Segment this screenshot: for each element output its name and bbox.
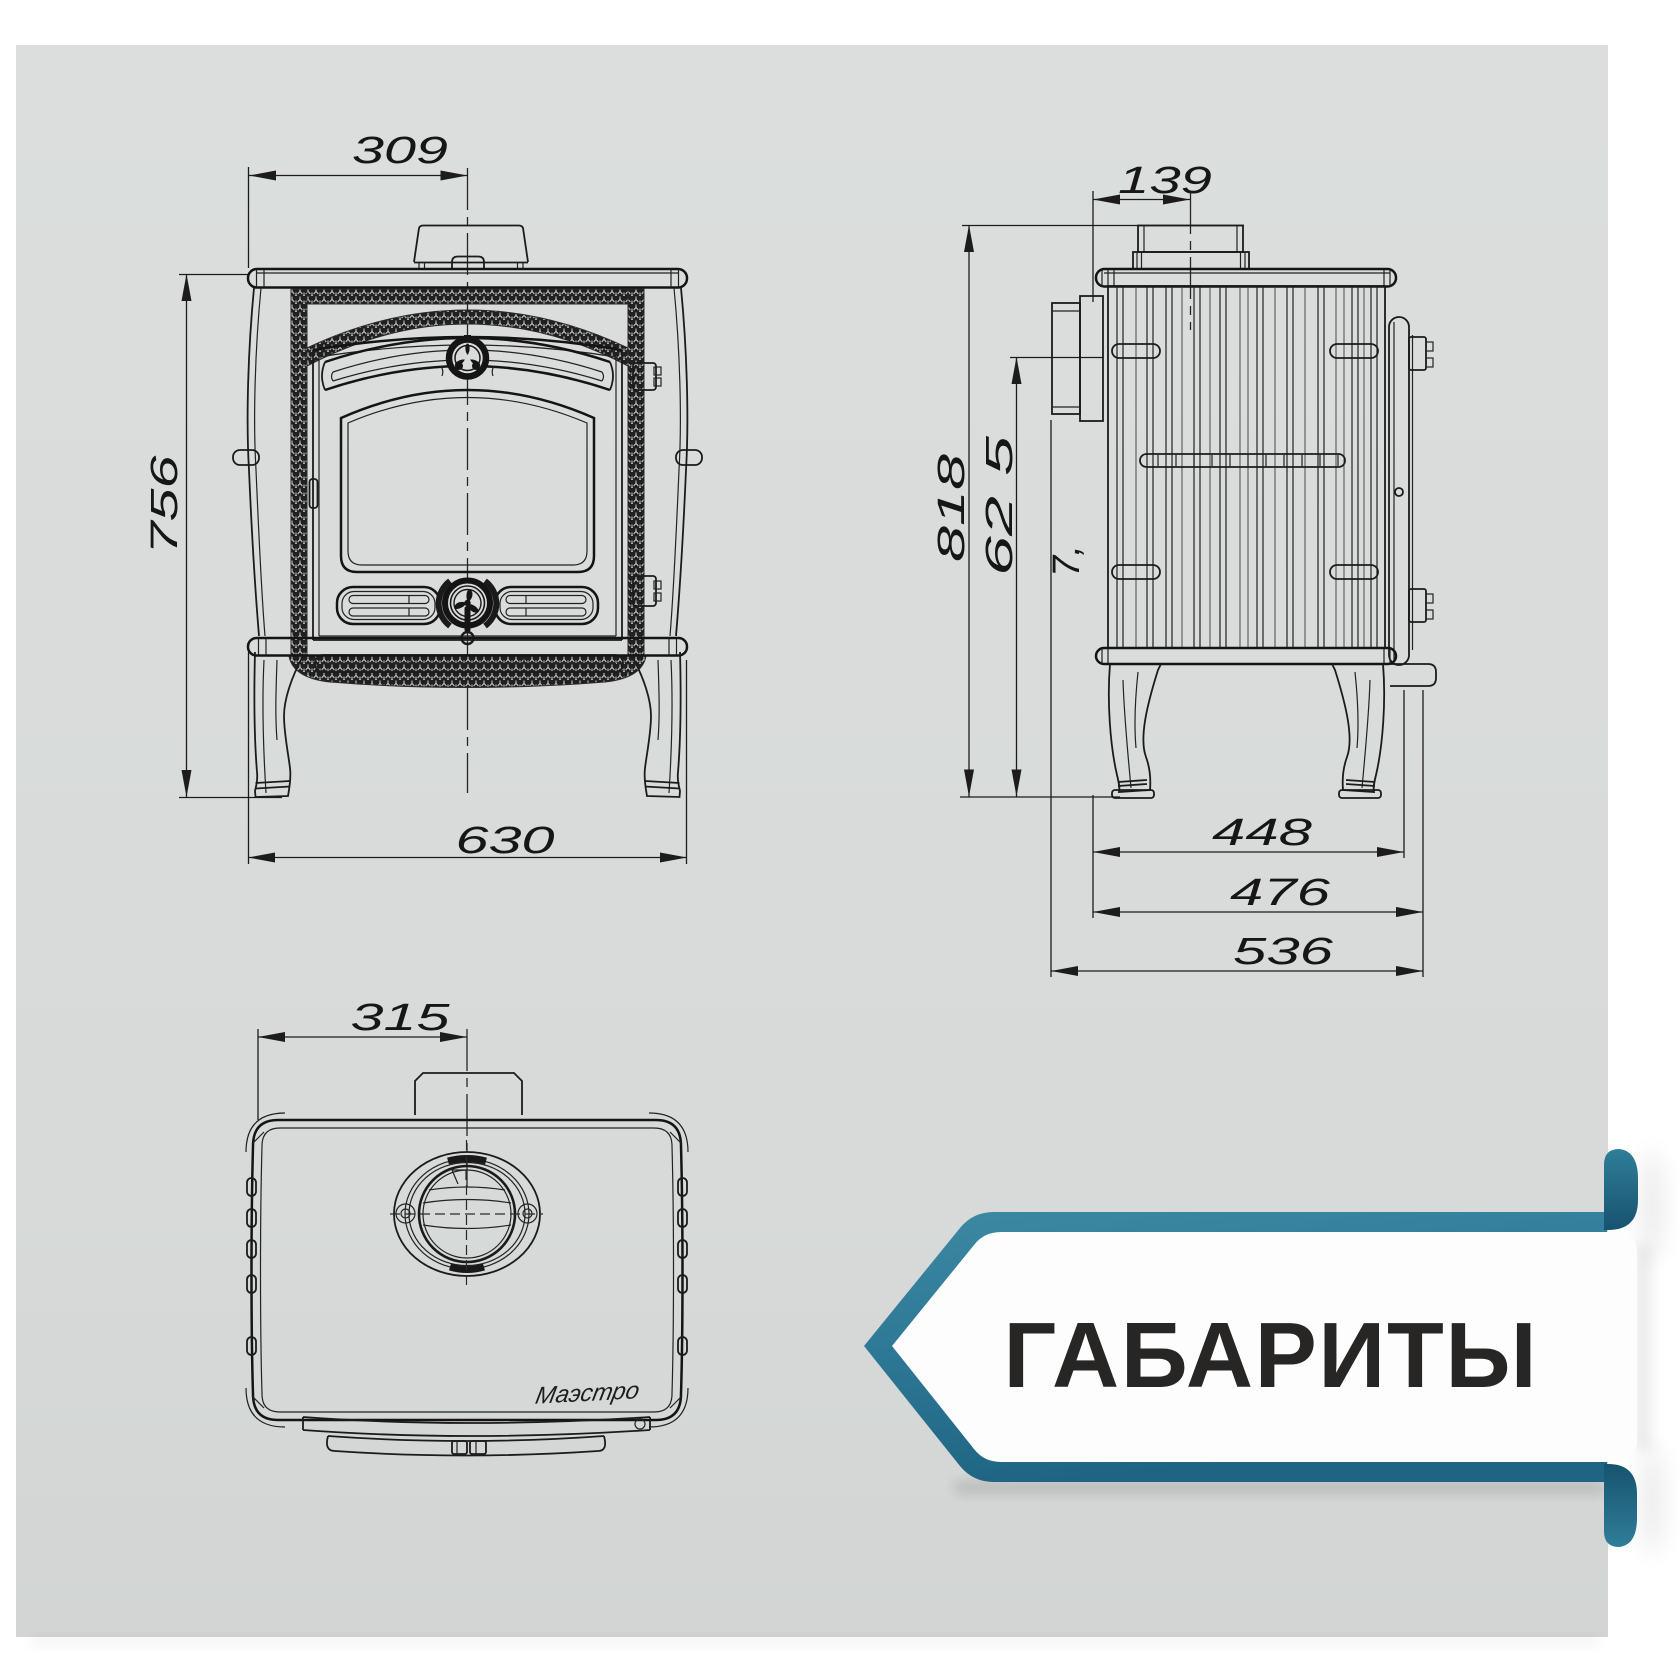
svg-text:536: 536 bbox=[1233, 931, 1334, 973]
svg-text:818: 818 bbox=[931, 454, 973, 562]
svg-text:756: 756 bbox=[144, 454, 186, 554]
svg-text:315: 315 bbox=[351, 997, 451, 1039]
svg-text:ГАБАРИТЫ: ГАБАРИТЫ bbox=[1004, 1303, 1537, 1407]
svg-text:448: 448 bbox=[1212, 812, 1312, 854]
svg-text:7,: 7, bbox=[1046, 545, 1088, 577]
svg-text:309: 309 bbox=[352, 130, 448, 172]
svg-text:476: 476 bbox=[1230, 872, 1331, 914]
svg-text:62 5: 62 5 bbox=[979, 434, 1021, 576]
svg-text:630: 630 bbox=[456, 820, 555, 862]
svg-text:Маэстро: Маэстро bbox=[533, 1377, 642, 1409]
